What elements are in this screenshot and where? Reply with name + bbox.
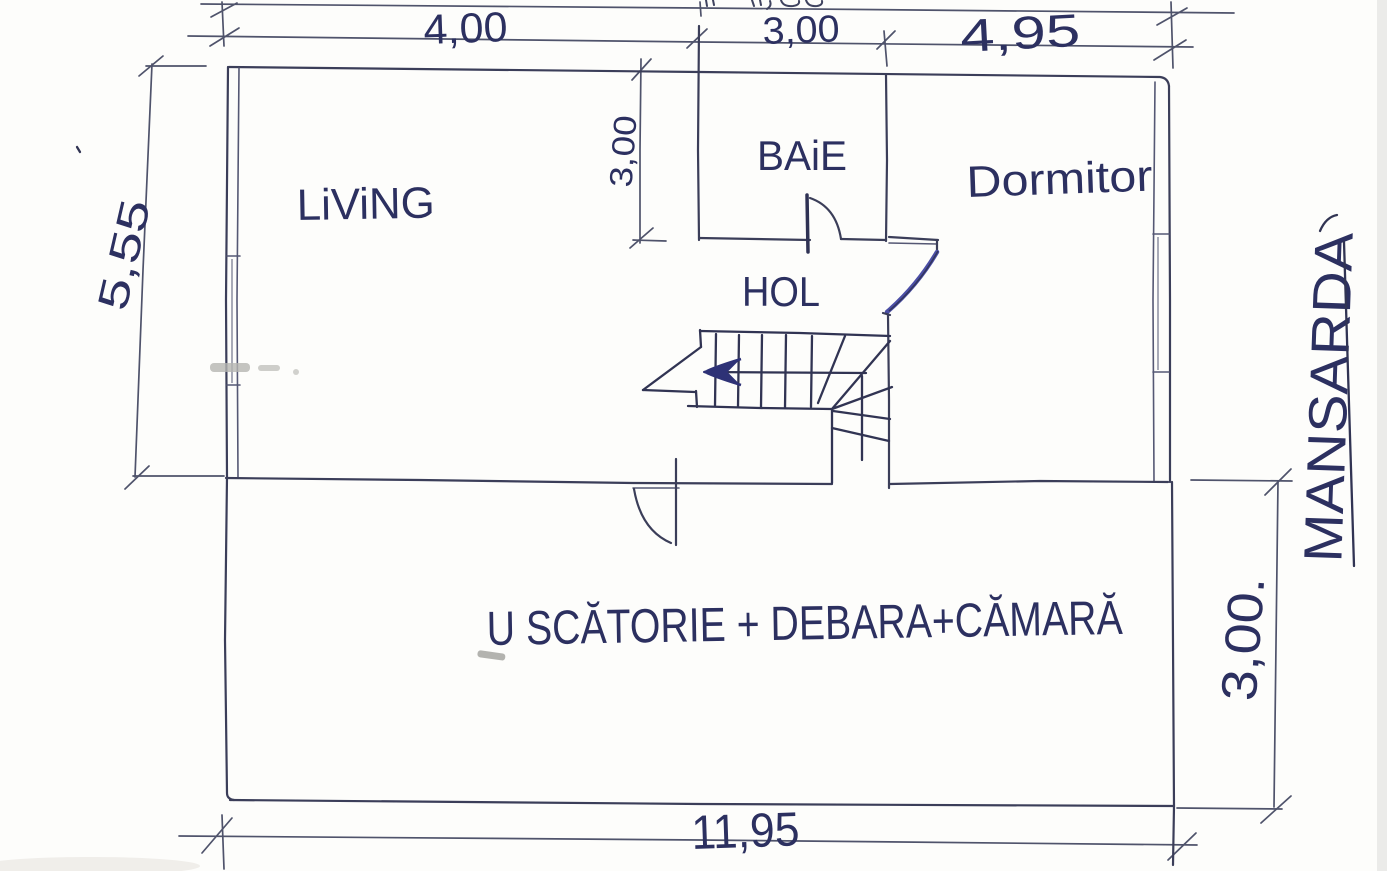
svg-text:HOL: HOL [742,268,820,315]
svg-text:MANSARDA: MANSARDA [1293,231,1364,563]
svg-text:BAiE: BAiE [757,132,847,179]
svg-text:3,00: 3,00 [603,114,644,188]
svg-text:Dormitor: Dormitor [966,152,1154,207]
svg-text:4,95: 4,95 [959,4,1082,62]
svg-text:3,00: 3,00 [762,8,840,53]
svg-text:4,00: 4,00 [423,3,509,53]
svg-text:LiViNG: LiViNG [296,179,435,230]
svg-text:U SCĂTORIE + DEBARA+CĂMARĂ: U SCĂTORIE + DEBARA+CĂMARĂ [486,592,1123,656]
svg-text:11,95: 11,95 [691,803,801,860]
svg-text:3,00.: 3,00. [1211,575,1276,703]
